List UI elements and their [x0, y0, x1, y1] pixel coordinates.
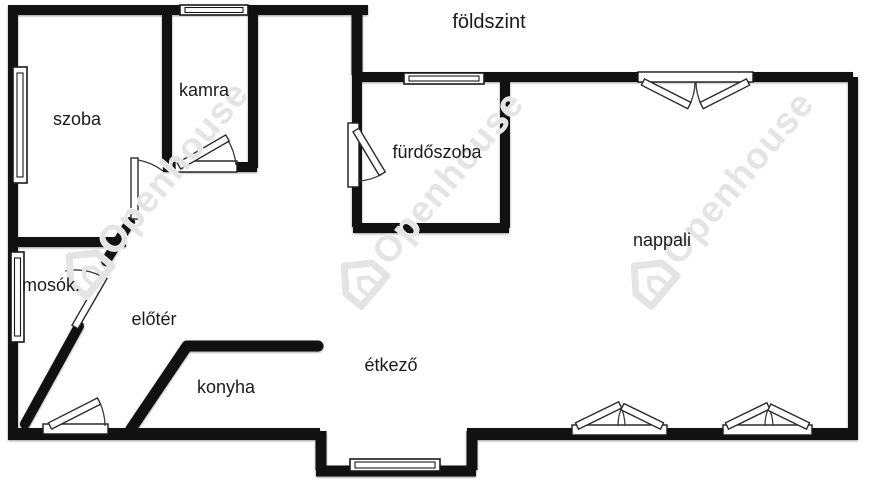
room-label-konyha: konyha: [197, 377, 256, 397]
floorplan-svg: Openhouse Openhouse Openhouse földszint …: [0, 0, 878, 483]
room-label-szoba: szoba: [53, 109, 102, 129]
door-entrance-icon: [43, 398, 108, 434]
window-kamra-top-icon: [180, 5, 248, 15]
room-label-nappali: nappali: [633, 230, 691, 250]
room-label-eloter: előtér: [131, 309, 176, 329]
room-label-kamra: kamra: [179, 80, 230, 100]
window-szoba-icon: [13, 67, 27, 183]
room-label-etkezo: étkező: [364, 355, 417, 375]
watermark-openhouse: Openhouse: [621, 82, 821, 309]
window-furdo-top-icon: [404, 73, 484, 84]
watermark-openhouse: Openhouse: [56, 72, 256, 299]
wall-diagonal-lower: [25, 326, 79, 424]
floorplan-page: Openhouse Openhouse Openhouse földszint …: [0, 0, 878, 483]
floor-title: földszint: [452, 11, 526, 33]
french-door-nappali-bottom-right-icon: [723, 403, 812, 435]
french-door-nappali-bottom-left-icon: [572, 402, 667, 435]
window-etkezo-bay-icon: [350, 459, 440, 471]
door-furdo-icon: [348, 123, 385, 187]
window-mosok-icon: [11, 252, 24, 342]
room-label-mosok: mosók.: [22, 275, 80, 295]
french-door-nappali-top-icon: [638, 72, 753, 109]
room-label-furdoszoba: fürdőszoba: [392, 142, 482, 162]
